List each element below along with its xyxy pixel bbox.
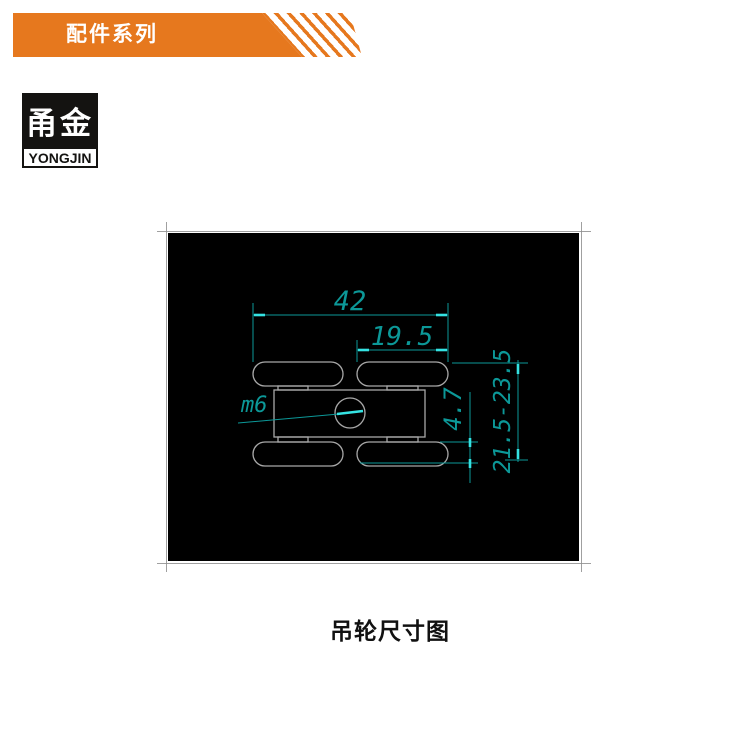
tab-bottom-left xyxy=(278,437,308,442)
banner-title: 配件系列 xyxy=(66,13,158,57)
frame-top-line xyxy=(157,231,591,232)
diagram-caption: 吊轮尺寸图 xyxy=(0,612,750,646)
dim-text-inner-width: 19.5 xyxy=(371,322,434,352)
frame-bottom-line xyxy=(157,563,591,564)
wheel-bottom-right xyxy=(357,442,448,466)
thread-label: m6 xyxy=(240,393,268,418)
brand-logo-hanzi: 甬金 xyxy=(22,93,98,147)
brand-logo-latin: YONGJIN xyxy=(22,147,98,168)
brand-logo: 甬金 YONGJIN xyxy=(22,93,98,168)
cad-drawing-plate: 42 19.5 m6 4.7 21.5-23.5 xyxy=(168,233,579,561)
m6-leader-end xyxy=(337,411,363,414)
tab-bottom-right xyxy=(387,437,418,442)
wheel-top-right xyxy=(357,362,448,386)
dim-text-thickness: 4.7 xyxy=(439,387,467,431)
wheel-bottom-left xyxy=(253,442,343,466)
hanging-wheel-drawing: 42 19.5 m6 4.7 21.5-23.5 xyxy=(168,233,579,561)
dim-text-overall-width: 42 xyxy=(334,286,367,317)
page-root: { "banner": { "title": "配件系列", "color": … xyxy=(0,0,750,750)
dim-text-range: 21.5-23.5 xyxy=(490,349,516,474)
wheel-top-left xyxy=(253,362,343,386)
frame-left-line xyxy=(166,222,167,572)
frame-right-line xyxy=(581,222,582,572)
